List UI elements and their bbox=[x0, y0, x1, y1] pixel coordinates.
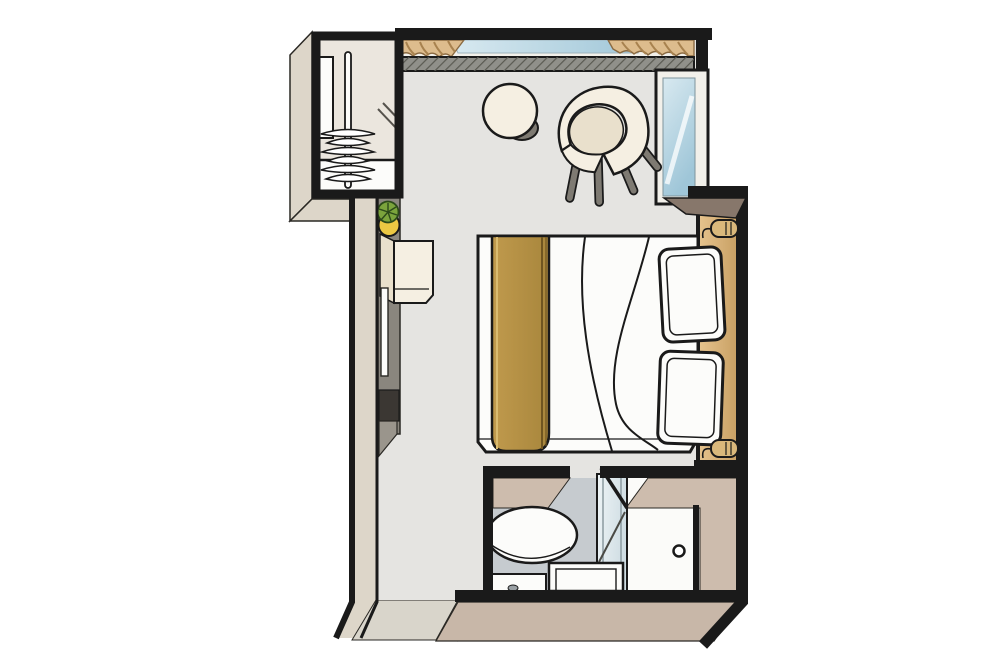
minibar-cabinet bbox=[379, 390, 399, 421]
vanity-mirror bbox=[381, 288, 388, 376]
stateroom-floor-plan bbox=[0, 0, 998, 665]
bottom-wall bbox=[455, 590, 740, 602]
right-wall-main bbox=[736, 190, 748, 604]
vanity-counter bbox=[549, 563, 623, 591]
shower-door-knob bbox=[674, 546, 685, 557]
top-wall bbox=[395, 28, 712, 40]
pillow-top bbox=[659, 246, 726, 342]
shelf-box bbox=[394, 241, 433, 303]
window-ledge-hatching bbox=[398, 57, 694, 71]
pillow-bottom bbox=[657, 351, 723, 445]
bathroom-bottom-face bbox=[436, 602, 740, 641]
bed-runner bbox=[492, 236, 549, 451]
side-window-and-step bbox=[656, 70, 748, 218]
floor-plan-canvas bbox=[0, 0, 998, 665]
step-wall bbox=[688, 186, 748, 199]
washbasin bbox=[487, 507, 577, 563]
wardrobe-left-face bbox=[290, 32, 312, 221]
bathroom-wall-top-right bbox=[600, 466, 740, 478]
left-wall-face bbox=[336, 196, 377, 638]
bathroom-wall-left bbox=[483, 466, 493, 592]
shower-wall-divider bbox=[693, 505, 699, 598]
bathroom bbox=[487, 474, 740, 598]
bathroom-wall-top-left bbox=[483, 466, 570, 478]
left-wall-outer-line bbox=[336, 196, 352, 638]
round-side-table bbox=[483, 84, 537, 138]
panoramic-window-band bbox=[398, 40, 694, 71]
